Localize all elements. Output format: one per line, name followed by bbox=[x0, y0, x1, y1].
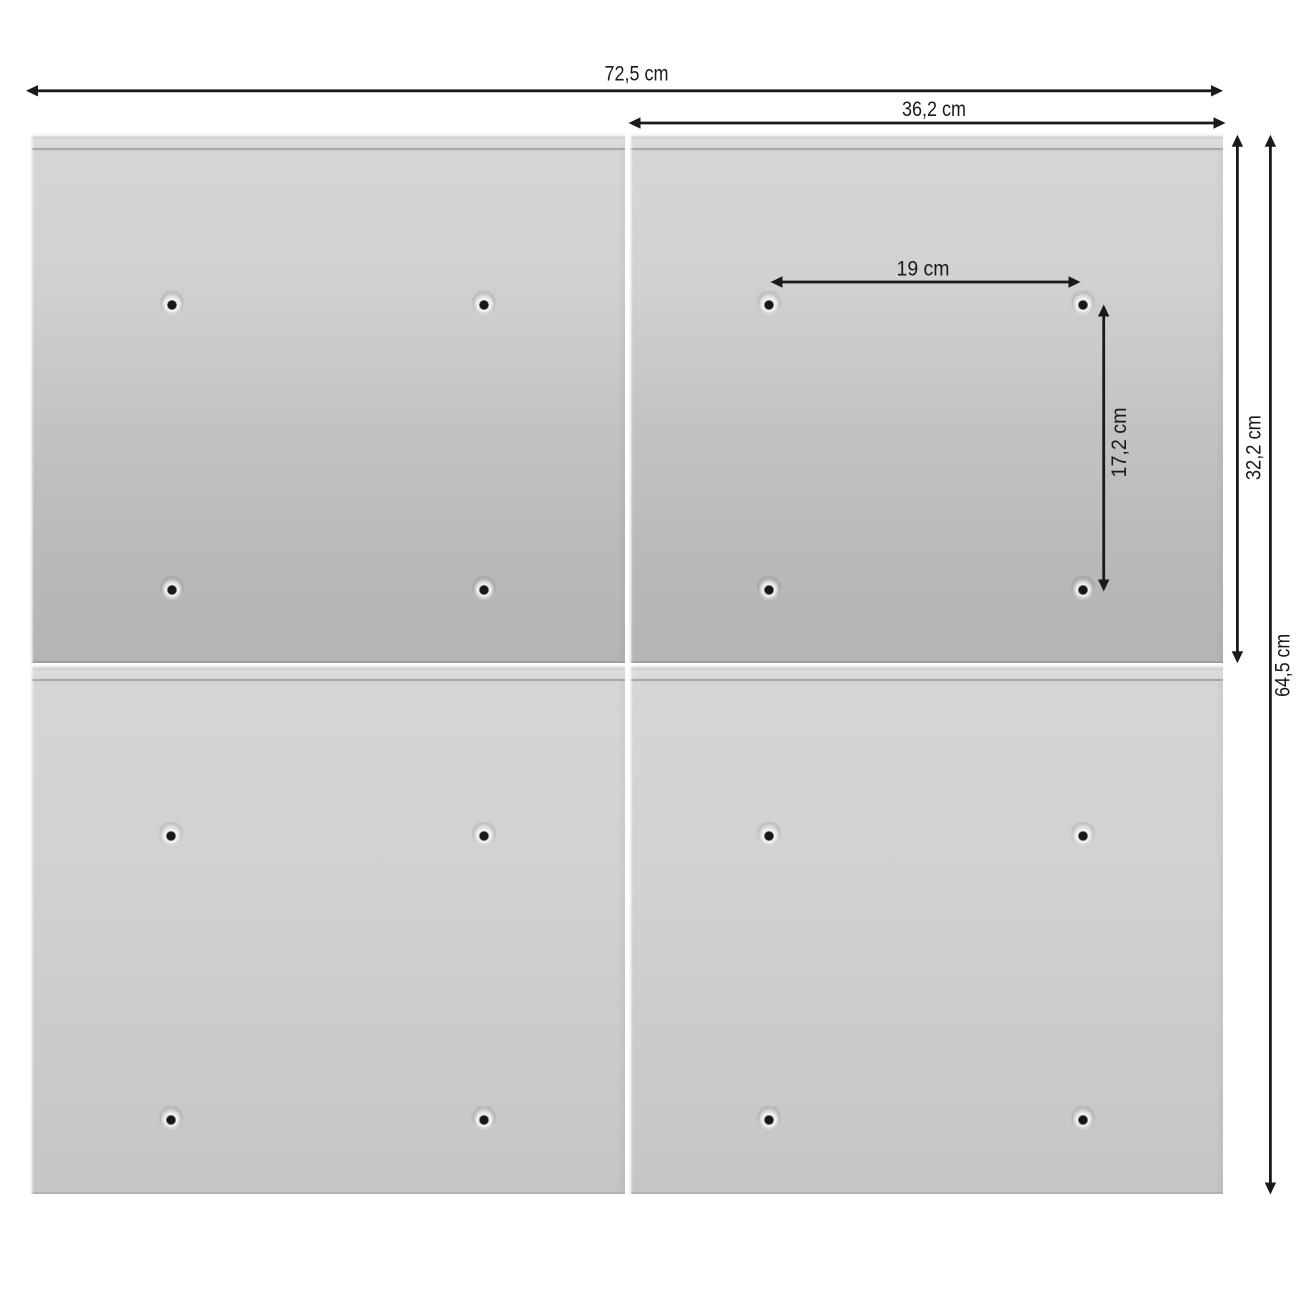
svg-text:32,2 cm: 32,2 cm bbox=[1243, 415, 1266, 480]
svg-text:19 cm: 19 cm bbox=[897, 257, 950, 280]
svg-text:64,5 cm: 64,5 cm bbox=[1272, 634, 1295, 697]
svg-text:72,5 cm: 72,5 cm bbox=[605, 62, 669, 85]
svg-text:17,2 cm: 17,2 cm bbox=[1108, 408, 1131, 478]
svg-text:36,2 cm: 36,2 cm bbox=[902, 98, 966, 121]
